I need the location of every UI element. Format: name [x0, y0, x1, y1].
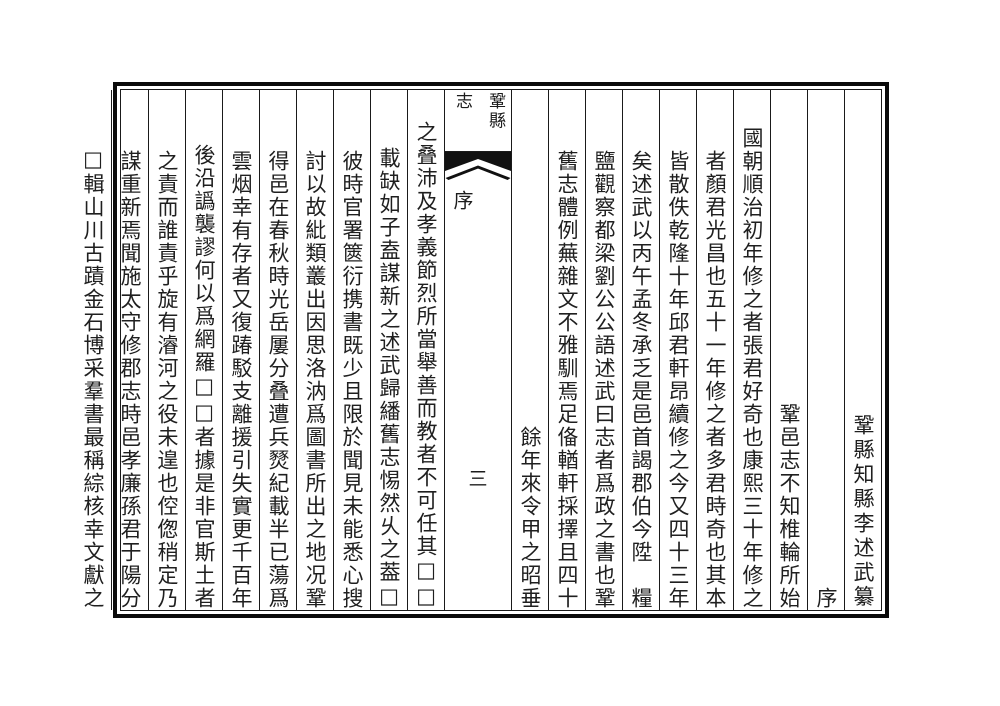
text-column-2: 序 [808, 90, 845, 610]
text-column-13: □載缺如子盍謀新之述武歸繙舊志惕然乆之葢 [371, 90, 408, 610]
text-column-9: 舊志體例蕪雜文不雅馴焉足俻輶軒採擇且四十 [549, 90, 586, 610]
text-column-10: 餘年來令甲之昭垂 [512, 90, 549, 610]
book-page-frame: 鞏縣知縣李述武纂序鞏邑志不知椎輪所始國朝順治初年修之者張君好奇也康熙三十年修之者… [113, 82, 889, 618]
text-column-21: 輯山川古蹟金石博采羣書最稱綜核幸文獻之□ [75, 90, 112, 610]
text-columns: 鞏縣知縣李述武纂序鞏邑志不知椎輪所始國朝順治初年修之者張君好奇也康熙三十年修之者… [121, 90, 881, 610]
text-column-3: 鞏邑志不知椎輪所始 [771, 90, 808, 610]
text-column-14: 彼時官署篋衍携書既少且限於聞見未能悉心搜 [334, 90, 371, 610]
text-column-12: □□之叠沛及孝義節烈所當舉善而教者不可任其 [408, 90, 445, 610]
text-column-4: 國朝順治初年修之者張君好奇也康熙三十年修之 [734, 90, 771, 610]
book-title: 鞏縣志 [445, 90, 511, 150]
text-column-17: 雲烟幸有存者又復踳駁支離援引失實更千百年 [223, 90, 260, 610]
page-canvas: 鞏縣知縣李述武纂序鞏邑志不知椎輪所始國朝順治初年修之者張君好奇也康熙三十年修之者… [0, 0, 1000, 706]
text-column-1: 鞏縣知縣李述武纂 [845, 90, 881, 610]
text-column-8: 鹽觀察都梁劉公公語述武曰志者爲政之書也鞏 [586, 90, 623, 610]
text-column-20: 謀重新焉聞施太守修郡志時邑孝廉孫君于陽分 [112, 90, 149, 610]
text-column-5: 者顏君光昌也五十一年修之者多君時奇也其本 [697, 90, 734, 610]
text-column-16: 得邑在春秋時光岳屢分叠遭兵燹紀載半已蕩爲 [260, 90, 297, 610]
section-label: 序 [445, 190, 478, 210]
text-column-19: 之責而誰責乎旋有濬河之役未遑也倥偬稍定乃 [149, 90, 186, 610]
text-column-15: 討以故紕類叢出因思洛汭爲圖書所出之地况鞏 [297, 90, 334, 610]
inner-frame: 鞏縣知縣李述武纂序鞏邑志不知椎輪所始國朝順治初年修之者張君好奇也康熙三十年修之者… [120, 89, 882, 611]
text-column-6: 皆散佚乾隆十年邱君軒昂續修之今又四十三年 [660, 90, 697, 610]
fishtail-icon [445, 152, 511, 186]
page-number: 三 [445, 468, 511, 490]
text-column-18: 後沿譌襲謬何以爲網羅□□者據是非官斯土者 [186, 90, 223, 610]
banxin-center-column: 鞏縣志序三 [445, 90, 512, 610]
text-column-7: 矣述武以丙午孟冬承乏是邑首謁郡伯今陞 糧 [623, 90, 660, 610]
